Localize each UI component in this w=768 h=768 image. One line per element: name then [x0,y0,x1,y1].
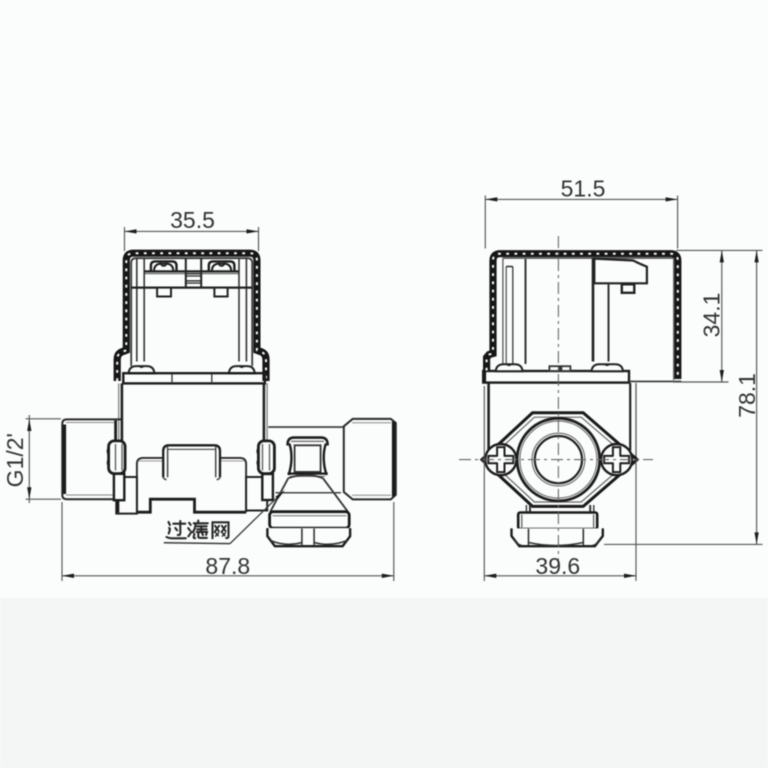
svg-text:78.1: 78.1 [734,373,760,418]
svg-text:34.1: 34.1 [698,293,724,338]
svg-text:39.6: 39.6 [535,553,580,579]
svg-text:G1/2': G1/2' [2,433,28,487]
svg-text:87.8: 87.8 [205,553,250,579]
svg-text:51.5: 51.5 [561,176,606,202]
svg-text:35.5: 35.5 [170,207,215,233]
